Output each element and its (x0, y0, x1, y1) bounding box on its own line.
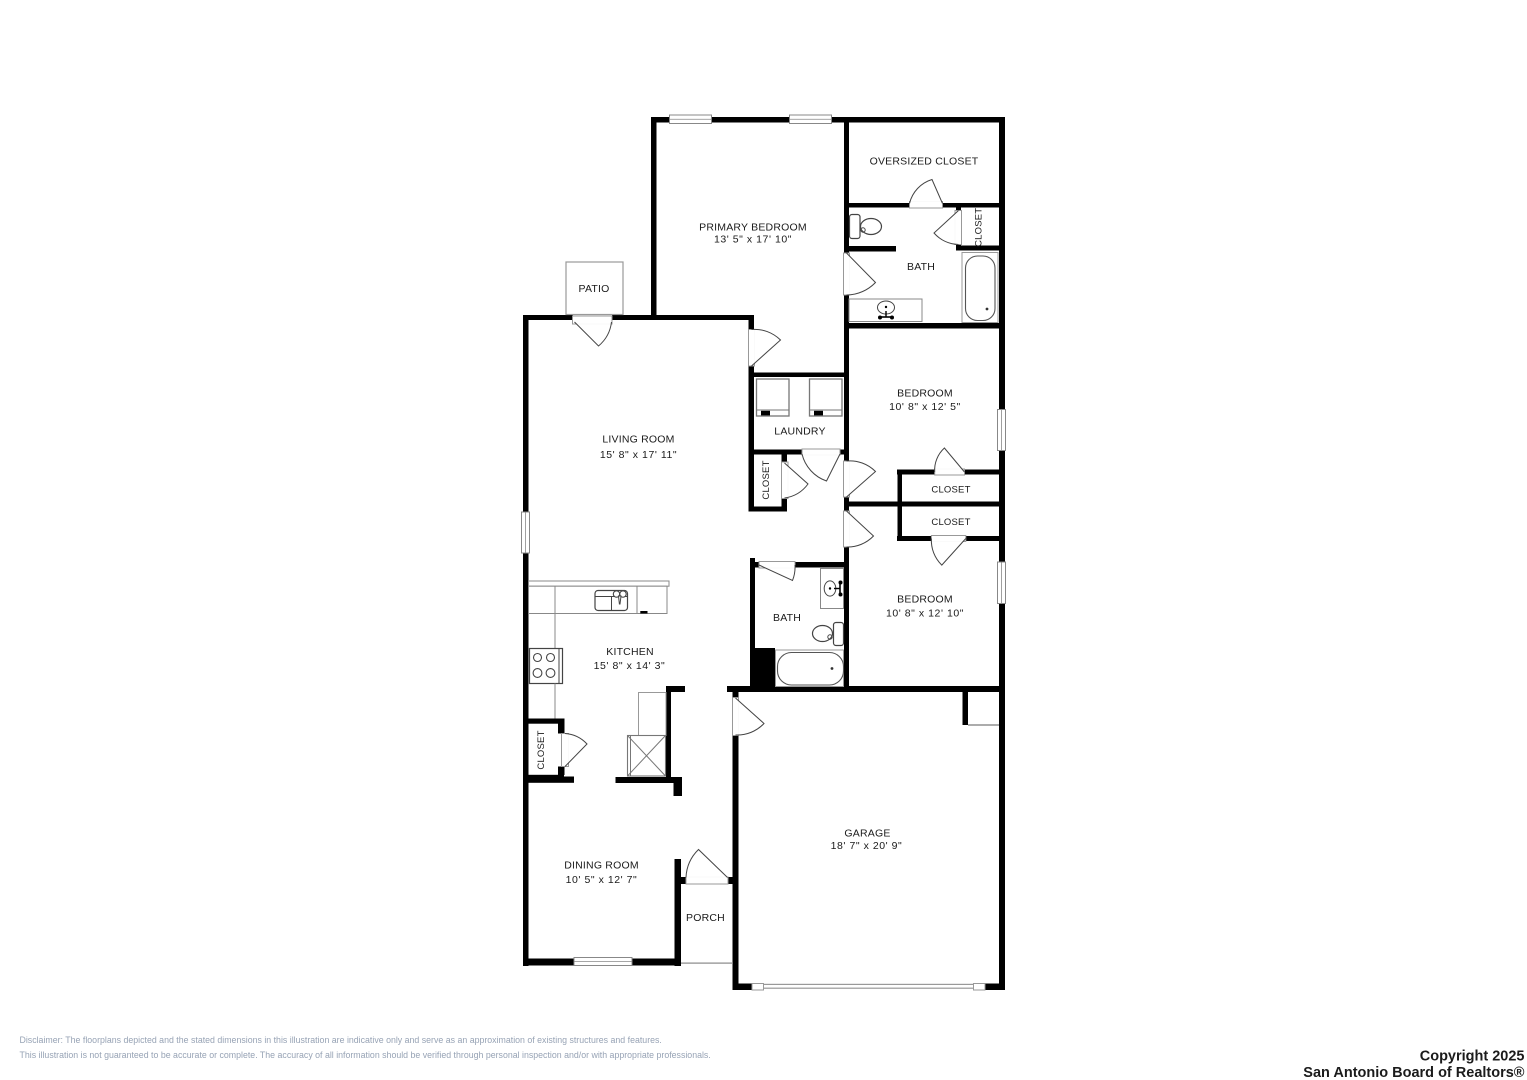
svg-text:10' 8" x 12' 10": 10' 8" x 12' 10" (886, 608, 964, 620)
svg-text:CLOSET: CLOSET (536, 730, 547, 769)
svg-text:This illustration is not guara: This illustration is not guaranteed to b… (20, 1050, 711, 1060)
svg-text:18' 7" x 20' 9": 18' 7" x 20' 9" (831, 840, 903, 852)
svg-text:OVERSIZED CLOSET: OVERSIZED CLOSET (870, 156, 979, 168)
svg-text:San Antonio Board of Realtors®: San Antonio Board of Realtors® (1303, 1065, 1525, 1080)
svg-text:CLOSET: CLOSET (761, 460, 772, 499)
svg-text:13' 5" x 17' 10": 13' 5" x 17' 10" (714, 234, 792, 246)
svg-text:PORCH: PORCH (686, 912, 725, 924)
svg-text:PRIMARY BEDROOM: PRIMARY BEDROOM (699, 222, 807, 234)
svg-text:Disclaimer: The floorplans dep: Disclaimer: The floorplans depicted and … (20, 1035, 662, 1045)
svg-text:15' 8" x 17' 11": 15' 8" x 17' 11" (600, 449, 677, 461)
svg-text:BEDROOM: BEDROOM (897, 594, 953, 606)
svg-text:CLOSET: CLOSET (931, 485, 970, 496)
svg-text:BATH: BATH (773, 612, 801, 624)
svg-text:10' 5" x 12' 7": 10' 5" x 12' 7" (566, 874, 638, 886)
svg-text:BATH: BATH (907, 261, 935, 273)
svg-text:LAUNDRY: LAUNDRY (774, 426, 825, 438)
svg-text:PATIO: PATIO (579, 283, 610, 295)
svg-text:GARAGE: GARAGE (844, 828, 890, 840)
svg-text:Copyright 2025: Copyright 2025 (1420, 1049, 1525, 1065)
svg-text:CLOSET: CLOSET (931, 517, 970, 528)
svg-text:BEDROOM: BEDROOM (897, 388, 953, 400)
svg-text:KITCHEN: KITCHEN (606, 646, 654, 658)
svg-text:10' 8" x 12' 5": 10' 8" x 12' 5" (889, 401, 961, 413)
svg-text:15' 8" x 14' 3": 15' 8" x 14' 3" (594, 660, 666, 672)
svg-text:CLOSET: CLOSET (974, 208, 985, 247)
svg-text:DINING ROOM: DINING ROOM (564, 860, 639, 872)
svg-text:LIVING ROOM: LIVING ROOM (602, 434, 674, 446)
